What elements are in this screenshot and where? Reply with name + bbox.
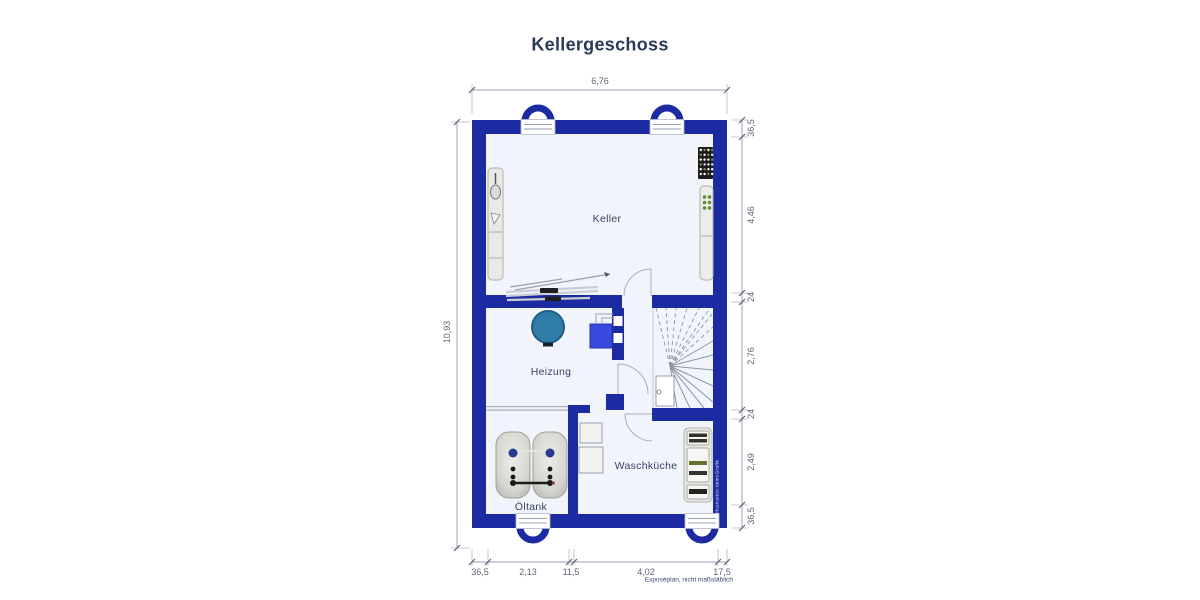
dim-right-6: 36,5: [746, 507, 756, 525]
bottle-cabinet-icon: [700, 186, 713, 280]
laundry-shelf-icon: [579, 423, 603, 473]
dim-right-0: 36,5: [746, 119, 756, 137]
room-label-oeltank: Öltank: [515, 501, 547, 513]
dim-bottom-0: 36,5: [471, 567, 489, 577]
washer-shelf-icon: [684, 428, 712, 502]
dim-right-1: 4,46: [746, 206, 756, 224]
footnote: Exposéplan, nicht maßstäblich: [645, 577, 733, 584]
dim-top-total: 6,76: [591, 76, 609, 86]
dim-right-2: 24: [746, 292, 756, 302]
floor-plan-page: Kellergeschoss: [0, 0, 1200, 600]
floor-plan-drawing: [0, 0, 1200, 600]
dim-right-4: 24: [746, 409, 756, 419]
room-label-keller: Keller: [593, 213, 622, 225]
dim-right-5: 2,49: [746, 453, 756, 471]
dim-bottom-3: 4,02: [637, 567, 655, 577]
dim-bottom-4: 17,5: [713, 567, 731, 577]
dim-right-3: 2,76: [746, 347, 756, 365]
watermark: Illustration ImmoGrafik: [715, 460, 720, 514]
room-label-heizung: Heizung: [531, 366, 572, 378]
room-label-waschkueche: Waschküche: [615, 460, 678, 472]
dim-bottom-1: 2,13: [519, 567, 537, 577]
dim-left-total: 10,93: [442, 321, 452, 344]
storage-shelf-icon: [488, 168, 503, 280]
wine-rack-icon: [698, 147, 713, 179]
dim-bottom-2: 11,5: [563, 567, 580, 577]
